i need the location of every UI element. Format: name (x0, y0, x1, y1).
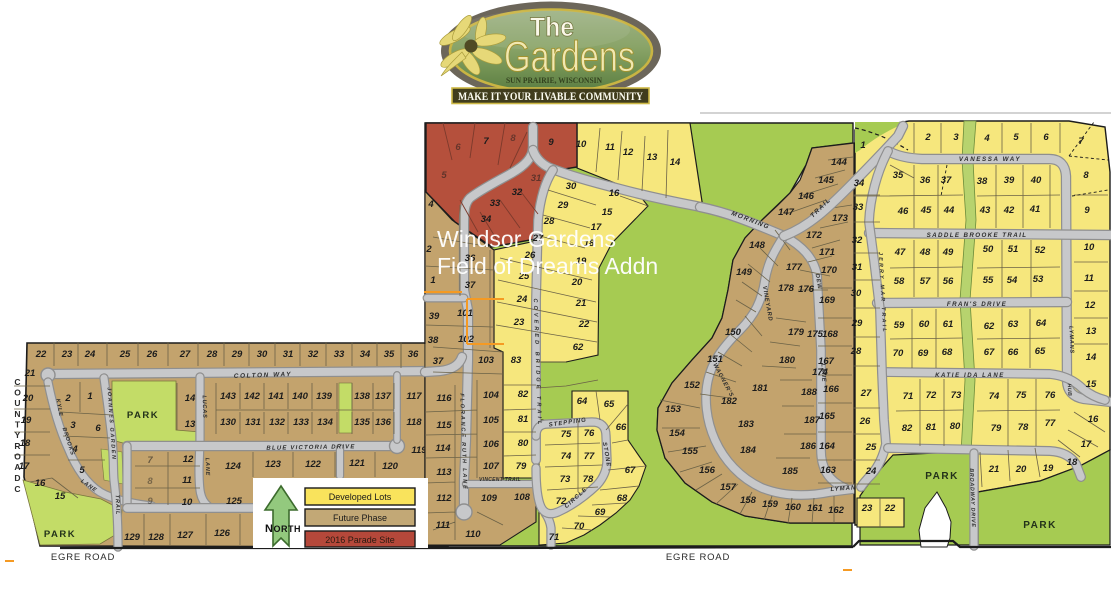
svg-text:8: 8 (1083, 170, 1089, 181)
svg-text:18: 18 (1067, 457, 1078, 468)
svg-text:83: 83 (511, 355, 522, 366)
svg-text:21: 21 (575, 298, 587, 309)
svg-text:161: 161 (807, 503, 823, 514)
svg-text:4: 4 (427, 199, 434, 210)
svg-text:178: 178 (778, 283, 795, 294)
svg-text:101: 101 (457, 308, 473, 319)
svg-text:66: 66 (1008, 347, 1019, 358)
svg-text:82: 82 (518, 389, 529, 400)
svg-text:12: 12 (623, 147, 634, 158)
svg-text:79: 79 (516, 461, 527, 472)
svg-text:19: 19 (21, 415, 32, 426)
svg-text:SUN PRAIRIE, WISCONSIN: SUN PRAIRIE, WISCONSIN (506, 76, 602, 85)
svg-text:29: 29 (557, 200, 569, 211)
svg-text:71: 71 (903, 391, 914, 402)
svg-text:67: 67 (625, 465, 636, 476)
svg-text:9: 9 (548, 137, 554, 148)
svg-text:30: 30 (851, 288, 862, 299)
svg-text:110: 110 (465, 529, 481, 540)
svg-text:42: 42 (1003, 205, 1015, 216)
svg-text:13: 13 (185, 419, 196, 430)
svg-text:174: 174 (812, 367, 829, 378)
svg-text:7: 7 (483, 136, 489, 147)
svg-text:162: 162 (828, 505, 845, 516)
svg-text:135: 135 (354, 417, 371, 428)
svg-text:75: 75 (561, 429, 572, 440)
svg-text:23: 23 (861, 503, 873, 514)
svg-text:8: 8 (510, 133, 516, 144)
svg-text:38: 38 (977, 176, 988, 187)
svg-text:2016 Parade Site: 2016 Parade Site (325, 535, 395, 545)
svg-text:13: 13 (647, 152, 658, 163)
svg-text:Developed Lots: Developed Lots (329, 492, 392, 502)
svg-text:44: 44 (943, 205, 955, 216)
svg-text:37: 37 (433, 356, 444, 367)
svg-text:79: 79 (991, 423, 1002, 434)
svg-text:72: 72 (556, 496, 567, 507)
svg-text:146: 146 (798, 191, 815, 202)
svg-text:22: 22 (884, 503, 896, 514)
svg-text:118: 118 (406, 417, 422, 428)
svg-text:20: 20 (22, 393, 34, 404)
svg-text:80: 80 (518, 438, 529, 449)
svg-text:PARK: PARK (1023, 520, 1057, 531)
svg-text:70: 70 (893, 348, 904, 359)
svg-text:LUCAS: LUCAS (201, 395, 208, 418)
svg-text:26: 26 (859, 416, 871, 427)
svg-text:150: 150 (725, 327, 742, 338)
svg-text:58: 58 (894, 276, 905, 287)
svg-text:153: 153 (665, 404, 682, 415)
svg-text:38: 38 (428, 335, 439, 346)
svg-text:39: 39 (1004, 175, 1015, 186)
svg-text:149: 149 (736, 267, 753, 278)
svg-text:EGRE ROAD: EGRE ROAD (666, 552, 730, 563)
svg-text:15: 15 (602, 207, 613, 218)
svg-text:29: 29 (231, 349, 243, 360)
svg-text:76: 76 (584, 428, 595, 439)
svg-text:65: 65 (1035, 346, 1046, 357)
svg-text:66: 66 (616, 422, 627, 433)
svg-text:78: 78 (1018, 422, 1029, 433)
svg-text:68: 68 (942, 347, 953, 358)
svg-text:164: 164 (819, 441, 836, 452)
svg-text:24: 24 (865, 466, 877, 477)
svg-text:22: 22 (578, 319, 590, 330)
svg-text:10: 10 (576, 139, 587, 150)
svg-text:14: 14 (185, 393, 196, 404)
svg-text:2: 2 (425, 244, 432, 255)
svg-text:74: 74 (561, 451, 572, 462)
svg-text:154: 154 (669, 428, 686, 439)
svg-text:140: 140 (292, 391, 309, 402)
svg-text:76: 76 (1045, 390, 1056, 401)
svg-text:28: 28 (206, 349, 218, 360)
svg-text:46: 46 (897, 206, 909, 217)
svg-text:107: 107 (483, 461, 500, 472)
svg-text:11: 11 (605, 142, 615, 153)
svg-text:48: 48 (919, 247, 931, 258)
svg-text:18: 18 (20, 438, 31, 449)
svg-text:127: 127 (177, 530, 194, 541)
svg-text:188: 188 (801, 387, 818, 398)
svg-text:156: 156 (699, 465, 716, 476)
svg-text:50: 50 (983, 244, 994, 255)
svg-text:136: 136 (375, 417, 392, 428)
svg-text:109: 109 (481, 493, 498, 504)
svg-text:34: 34 (360, 349, 371, 360)
svg-text:131: 131 (245, 417, 261, 428)
svg-text:40: 40 (1030, 175, 1042, 186)
svg-text:75: 75 (1016, 390, 1027, 401)
svg-text:21: 21 (24, 368, 36, 379)
svg-text:22: 22 (35, 349, 47, 360)
svg-text:PARK: PARK (44, 529, 76, 540)
svg-text:33: 33 (334, 349, 345, 360)
svg-text:134: 134 (317, 417, 334, 428)
svg-text:158: 158 (740, 495, 757, 506)
svg-text:26: 26 (146, 349, 158, 360)
svg-text:129: 129 (124, 532, 141, 543)
svg-text:121: 121 (349, 458, 365, 469)
svg-text:137: 137 (375, 391, 392, 402)
svg-text:TRAIL: TRAIL (114, 495, 121, 516)
svg-text:20: 20 (1015, 464, 1027, 475)
svg-text:31: 31 (283, 349, 294, 360)
svg-text:63: 63 (1008, 319, 1019, 330)
svg-text:72: 72 (926, 390, 937, 401)
svg-text:2: 2 (64, 393, 71, 404)
svg-text:FRAN'S DRIVE: FRAN'S DRIVE (947, 301, 1007, 308)
svg-text:82: 82 (902, 423, 913, 434)
svg-text:57: 57 (920, 276, 931, 287)
svg-text:33: 33 (490, 198, 501, 209)
svg-text:24: 24 (84, 349, 96, 360)
svg-text:7: 7 (147, 455, 153, 466)
svg-text:157: 157 (720, 482, 737, 493)
svg-text:142: 142 (244, 391, 261, 402)
svg-text:24: 24 (516, 294, 528, 305)
svg-text:10: 10 (1084, 242, 1095, 253)
svg-text:Y: Y (15, 430, 21, 440)
svg-text:61: 61 (943, 319, 954, 330)
svg-text:9: 9 (147, 496, 153, 507)
svg-text:37: 37 (465, 280, 476, 291)
svg-text:155: 155 (682, 446, 699, 457)
svg-text:VANESSA WAY: VANESSA WAY (959, 156, 1021, 163)
svg-text:148: 148 (749, 240, 766, 251)
svg-text:27: 27 (179, 349, 191, 360)
svg-text:R: R (14, 441, 20, 451)
svg-text:139: 139 (316, 391, 333, 402)
svg-text:67: 67 (984, 347, 995, 358)
svg-text:111: 111 (436, 520, 450, 531)
svg-text:108: 108 (514, 492, 531, 503)
svg-text:33: 33 (853, 202, 864, 213)
svg-text:172: 172 (806, 230, 823, 241)
svg-text:165: 165 (819, 411, 836, 422)
svg-text:185: 185 (782, 466, 799, 477)
svg-text:170: 170 (821, 265, 838, 276)
svg-text:3: 3 (70, 420, 76, 431)
svg-text:181: 181 (752, 383, 768, 394)
svg-text:116: 116 (436, 393, 452, 404)
svg-text:74: 74 (989, 391, 1000, 402)
svg-text:184: 184 (740, 445, 757, 456)
svg-text:LANE: LANE (204, 458, 211, 477)
svg-text:37: 37 (941, 175, 952, 186)
svg-text:43: 43 (979, 205, 991, 216)
svg-text:Gardens: Gardens (504, 33, 635, 81)
svg-text:117: 117 (406, 391, 422, 402)
svg-text:11: 11 (182, 475, 192, 486)
svg-text:31: 31 (531, 173, 542, 184)
svg-text:81: 81 (926, 422, 937, 433)
svg-text:14: 14 (1086, 352, 1097, 363)
svg-text:32: 32 (512, 187, 523, 198)
svg-text:11: 11 (1084, 273, 1094, 284)
svg-text:106: 106 (483, 439, 500, 450)
svg-text:35: 35 (384, 349, 395, 360)
svg-text:103: 103 (478, 355, 495, 366)
svg-text:6: 6 (95, 423, 101, 434)
svg-text:6: 6 (455, 142, 461, 153)
svg-text:77: 77 (584, 451, 595, 462)
svg-text:69: 69 (918, 348, 929, 359)
svg-text:55: 55 (983, 275, 994, 286)
svg-text:180: 180 (779, 355, 796, 366)
svg-text:73: 73 (560, 474, 571, 485)
svg-text:3: 3 (953, 132, 959, 143)
svg-text:56: 56 (943, 276, 954, 287)
svg-text:8: 8 (147, 476, 153, 487)
svg-text:1: 1 (860, 140, 865, 151)
svg-text:27: 27 (860, 388, 872, 399)
svg-text:68: 68 (617, 493, 628, 504)
svg-text:133: 133 (293, 417, 310, 428)
svg-text:138: 138 (354, 391, 371, 402)
svg-text:15: 15 (55, 491, 66, 502)
svg-text:SADDLE BROOKE TRAIL: SADDLE BROOKE TRAIL (927, 232, 1028, 239)
svg-text:36: 36 (408, 349, 419, 360)
svg-text:145: 145 (818, 175, 835, 186)
svg-text:173: 173 (832, 213, 849, 224)
svg-text:123: 123 (265, 459, 282, 470)
svg-text:7: 7 (1078, 136, 1084, 147)
svg-text:124: 124 (225, 461, 242, 472)
svg-text:28: 28 (850, 346, 862, 357)
svg-text:64: 64 (1036, 318, 1047, 329)
svg-text:126: 126 (214, 528, 231, 539)
svg-text:N: N (14, 409, 20, 419)
svg-text:16: 16 (1088, 414, 1099, 425)
svg-text:39: 39 (429, 311, 440, 322)
svg-text:51: 51 (1008, 244, 1019, 255)
svg-text:21: 21 (988, 464, 1000, 475)
svg-text:NORTH: NORTH (265, 523, 301, 535)
svg-text:C: C (14, 484, 20, 494)
svg-text:69: 69 (595, 507, 606, 518)
svg-text:105: 105 (483, 415, 500, 426)
svg-text:O: O (14, 388, 21, 398)
svg-text:32: 32 (308, 349, 319, 360)
svg-text:T: T (15, 419, 21, 429)
svg-text:171: 171 (819, 247, 835, 258)
svg-text:53: 53 (1033, 274, 1044, 285)
svg-text:10: 10 (182, 497, 193, 508)
svg-text:C: C (14, 377, 20, 387)
svg-text:169: 169 (819, 295, 836, 306)
svg-text:PARK: PARK (925, 471, 959, 482)
svg-text:KATIE IDA LANE: KATIE IDA LANE (935, 373, 1005, 379)
svg-text:186: 186 (800, 441, 817, 452)
svg-text:152: 152 (684, 380, 701, 391)
svg-text:81: 81 (518, 414, 529, 425)
svg-text:166: 166 (823, 384, 840, 395)
svg-text:MAKE IT YOUR LIVABLE COMMUNITY: MAKE IT YOUR LIVABLE COMMUNITY (458, 89, 643, 103)
svg-text:LYMANS: LYMANS (1068, 326, 1075, 354)
svg-text:73: 73 (951, 390, 962, 401)
svg-text:130: 130 (220, 417, 237, 428)
svg-text:159: 159 (762, 499, 779, 510)
svg-text:71: 71 (549, 532, 560, 543)
svg-text:1: 1 (430, 275, 435, 286)
svg-text:16: 16 (609, 188, 620, 199)
svg-text:60: 60 (919, 319, 930, 330)
svg-text:167: 167 (818, 356, 835, 367)
svg-text:15: 15 (1086, 379, 1097, 390)
svg-text:HUB: HUB (1066, 383, 1072, 396)
svg-text:17: 17 (1081, 439, 1092, 450)
svg-text:120: 120 (382, 461, 399, 472)
svg-text:122: 122 (305, 459, 322, 470)
svg-text:168: 168 (822, 329, 839, 340)
svg-text:163: 163 (820, 465, 837, 476)
svg-text:47: 47 (894, 247, 906, 258)
svg-text:160: 160 (785, 502, 802, 513)
svg-text:78: 78 (583, 474, 594, 485)
svg-text:177: 177 (786, 262, 803, 273)
svg-text:Future Phase: Future Phase (333, 513, 387, 523)
svg-text:144: 144 (831, 157, 848, 168)
svg-text:29: 29 (851, 318, 863, 329)
svg-text:128: 128 (148, 532, 165, 543)
svg-text:132: 132 (269, 417, 286, 428)
svg-text:77: 77 (1045, 418, 1056, 429)
svg-text:65: 65 (604, 399, 615, 410)
svg-text:59: 59 (894, 320, 905, 331)
svg-text:182: 182 (721, 396, 738, 407)
svg-text:23: 23 (513, 317, 525, 328)
svg-text:12: 12 (1085, 300, 1096, 311)
svg-text:62: 62 (573, 342, 584, 353)
svg-text:PARK: PARK (127, 410, 159, 421)
svg-text:12: 12 (183, 454, 194, 465)
svg-text:9: 9 (1084, 205, 1090, 216)
svg-text:D: D (14, 473, 20, 483)
svg-text:5: 5 (79, 465, 85, 476)
svg-text:141: 141 (268, 391, 284, 402)
svg-text:147: 147 (778, 207, 795, 218)
svg-text:143: 143 (220, 391, 237, 402)
svg-text:35: 35 (893, 170, 904, 181)
svg-text:54: 54 (1007, 275, 1018, 286)
svg-text:104: 104 (483, 390, 500, 401)
svg-text:62: 62 (984, 321, 995, 332)
svg-text:VINCENT TRAIL: VINCENT TRAIL (479, 477, 521, 483)
svg-text:16: 16 (35, 478, 46, 489)
svg-text:31: 31 (852, 262, 863, 273)
svg-text:Field of Dreams Addn: Field of Dreams Addn (437, 253, 658, 279)
svg-text:1: 1 (87, 391, 92, 402)
svg-text:176: 176 (798, 284, 815, 295)
svg-text:Windsor Gardens: Windsor Gardens (437, 226, 616, 252)
svg-text:13: 13 (1086, 326, 1097, 337)
svg-text:5: 5 (441, 170, 447, 181)
svg-text:112: 112 (436, 493, 452, 504)
svg-text:A: A (14, 462, 20, 472)
svg-text:14: 14 (670, 157, 681, 168)
svg-text:64: 64 (577, 396, 588, 407)
svg-text:EGRE ROAD: EGRE ROAD (51, 552, 115, 563)
svg-text:151: 151 (707, 354, 723, 365)
svg-text:30: 30 (566, 181, 577, 192)
svg-text:30: 30 (257, 349, 268, 360)
svg-text:45: 45 (920, 205, 932, 216)
svg-text:25: 25 (865, 442, 877, 453)
svg-text:114: 114 (435, 443, 451, 454)
svg-text:U: U (14, 398, 20, 408)
svg-text:183: 183 (738, 419, 755, 430)
svg-text:80: 80 (950, 421, 961, 432)
svg-text:52: 52 (1035, 245, 1046, 256)
svg-text:19: 19 (1043, 463, 1054, 474)
svg-text:34: 34 (481, 214, 492, 225)
svg-text:113: 113 (436, 467, 452, 478)
svg-text:70: 70 (574, 521, 585, 532)
svg-text:125: 125 (226, 496, 243, 507)
svg-text:4: 4 (71, 444, 78, 455)
svg-text:23: 23 (61, 349, 73, 360)
svg-text:2: 2 (924, 132, 931, 143)
svg-text:36: 36 (920, 175, 931, 186)
svg-text:O: O (14, 452, 21, 462)
svg-text:34: 34 (854, 178, 865, 189)
svg-text:5: 5 (1013, 132, 1019, 143)
svg-text:179: 179 (788, 327, 805, 338)
svg-text:41: 41 (1029, 204, 1041, 215)
svg-text:115: 115 (436, 420, 452, 431)
svg-text:4: 4 (983, 133, 990, 144)
svg-text:49: 49 (942, 247, 954, 258)
svg-text:6: 6 (1043, 132, 1049, 143)
svg-text:32: 32 (852, 235, 863, 246)
svg-text:25: 25 (119, 349, 131, 360)
